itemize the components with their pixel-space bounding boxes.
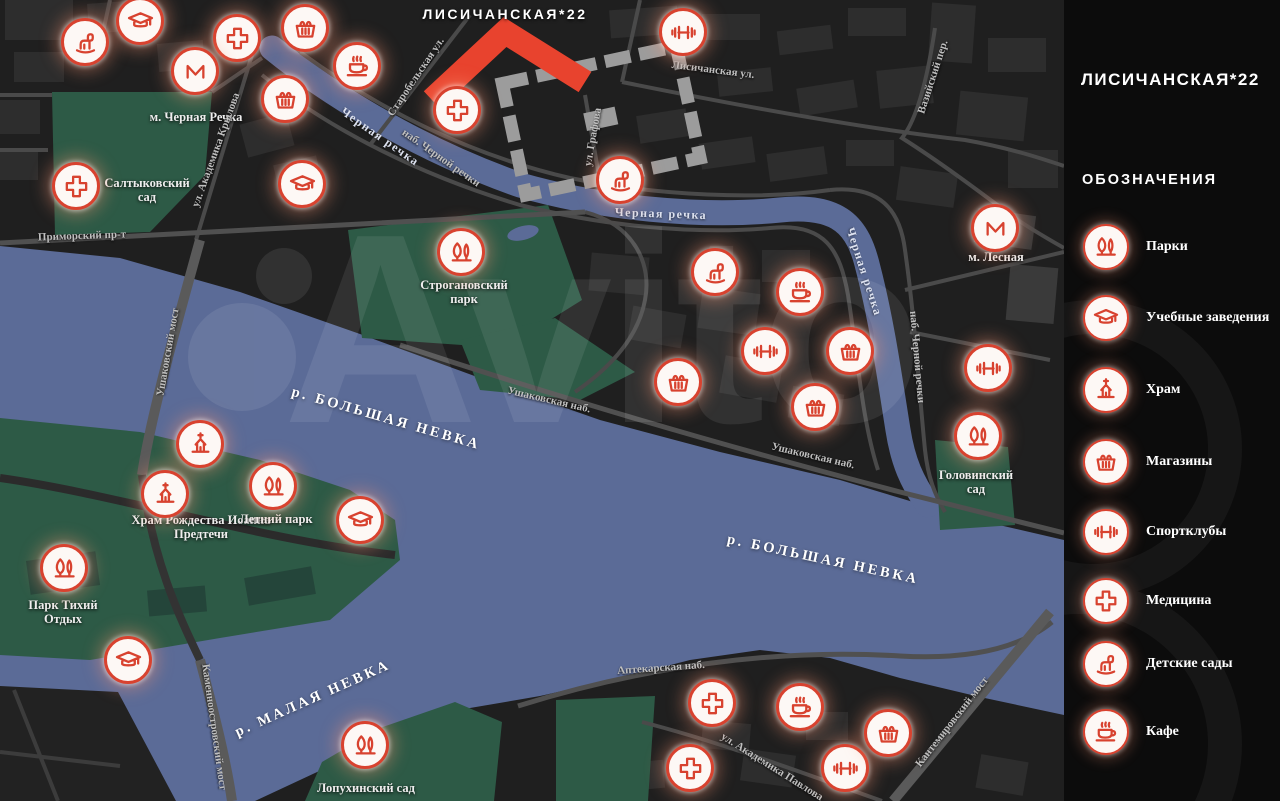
shop-marker-icon (864, 709, 912, 757)
kindergarten-icon (1083, 641, 1129, 687)
gym-icon (1083, 509, 1129, 555)
park-marker-icon (954, 412, 1002, 460)
legend-item-church: Храм (1083, 367, 1272, 413)
avito-map-screenshot: Avito ЛИСИЧАНСКАЯ*22м. Черная РечкаСалты… (0, 0, 1280, 801)
map-markers-layer (0, 0, 1064, 801)
gym-marker-icon (821, 744, 869, 792)
legend-label: Парки (1146, 238, 1272, 256)
park-marker-icon (249, 462, 297, 510)
medicine-marker-icon (52, 162, 100, 210)
legend-label: Магазины (1146, 453, 1272, 471)
gym-marker-icon (964, 344, 1012, 392)
legend-title: ОБОЗНАЧЕНИЯ (1082, 172, 1217, 188)
gym-marker-icon (659, 8, 707, 56)
legend-item-education: Учебные заведения (1083, 295, 1272, 341)
legend-label: Храм (1146, 381, 1272, 399)
shop-icon (1083, 439, 1129, 485)
cafe-marker-icon (333, 42, 381, 90)
education-marker-icon (278, 160, 326, 208)
shop-marker-icon (654, 358, 702, 406)
education-marker-icon (336, 496, 384, 544)
legend-item-gym: Спортклубы (1083, 509, 1272, 555)
park-marker-icon (437, 228, 485, 276)
shop-marker-icon (826, 327, 874, 375)
legend-item-medicine: Медицина (1083, 578, 1272, 624)
kindergarten-marker-icon (691, 248, 739, 296)
church-marker-icon (141, 470, 189, 518)
legend-panel: ЛИСИЧАНСКАЯ*22 ОБОЗНАЧЕНИЯ ПаркиУчебные … (1064, 0, 1280, 801)
park-marker-icon (341, 721, 389, 769)
medicine-marker-icon (433, 86, 481, 134)
park-marker-icon (40, 544, 88, 592)
legend-item-shop: Магазины (1083, 439, 1272, 485)
map-canvas: Avito ЛИСИЧАНСКАЯ*22м. Черная РечкаСалты… (0, 0, 1064, 801)
medicine-icon (1083, 578, 1129, 624)
medicine-marker-icon (688, 679, 736, 727)
cafe-marker-icon (776, 268, 824, 316)
legend-item-kindergarten: Детские сады (1083, 641, 1272, 687)
shop-marker-icon (261, 75, 309, 123)
legend-label: Учебные заведения (1146, 309, 1272, 327)
kindergarten-marker-icon (596, 156, 644, 204)
medicine-marker-icon (213, 14, 261, 62)
metro-marker-icon (171, 47, 219, 95)
shop-marker-icon (791, 383, 839, 431)
legend-label: Спортклубы (1146, 523, 1272, 541)
project-title: ЛИСИЧАНСКАЯ*22 (1081, 70, 1260, 90)
education-marker-icon (104, 636, 152, 684)
legend-label: Кафе (1146, 723, 1272, 741)
church-marker-icon (176, 420, 224, 468)
legend-item-park: Парки (1083, 224, 1272, 270)
park-icon (1083, 224, 1129, 270)
medicine-marker-icon (666, 744, 714, 792)
legend-label: Детские сады (1146, 655, 1272, 673)
church-icon (1083, 367, 1129, 413)
gym-marker-icon (741, 327, 789, 375)
legend-item-cafe: Кафе (1083, 709, 1272, 755)
metro-marker-icon (971, 204, 1019, 252)
education-icon (1083, 295, 1129, 341)
cafe-marker-icon (776, 683, 824, 731)
cafe-icon (1083, 709, 1129, 755)
shop-marker-icon (281, 4, 329, 52)
legend-label: Медицина (1146, 592, 1272, 610)
education-marker-icon (116, 0, 164, 45)
kindergarten-marker-icon (61, 18, 109, 66)
